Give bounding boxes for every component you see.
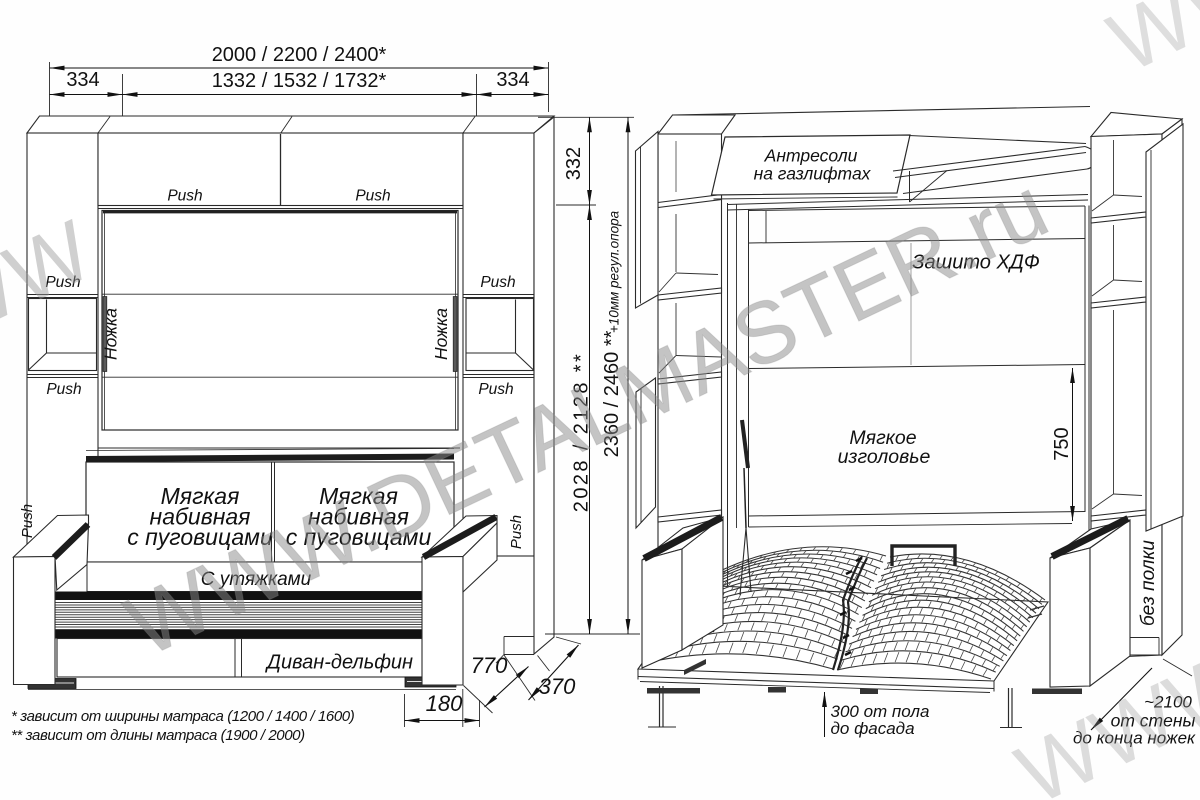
svg-text:Антресоли: Антресоли — [764, 146, 858, 166]
svg-text:Push: Push — [478, 381, 513, 398]
svg-text:334: 334 — [496, 69, 529, 91]
svg-text:Push: Push — [480, 274, 515, 291]
svg-text:1332 / 1532 / 1732*: 1332 / 1532 / 1732* — [212, 70, 387, 92]
svg-text:до фасада: до фасада — [831, 719, 915, 738]
svg-text:Ножка: Ножка — [101, 308, 121, 360]
svg-text:Push: Push — [508, 515, 525, 549]
svg-text:* зависит от ширины матраса (1: * зависит от ширины матраса (1200 / 1400… — [11, 708, 355, 725]
svg-text:изголовье: изголовье — [838, 446, 931, 468]
svg-text:370: 370 — [539, 674, 576, 699]
svg-text:2000 / 2200 / 2400*: 2000 / 2200 / 2400* — [212, 44, 387, 66]
svg-text:Push: Push — [355, 188, 390, 205]
svg-text:Ножка: Ножка — [431, 308, 451, 360]
svg-text:** зависит от длины матраса (1: ** зависит от длины матраса (1900 / 2000… — [11, 727, 305, 744]
svg-text:750: 750 — [1051, 427, 1073, 460]
svg-text:Диван-дельфин: Диван-дельфин — [265, 652, 413, 674]
svg-text:180: 180 — [426, 691, 463, 716]
svg-text:Push: Push — [46, 381, 81, 398]
svg-text:332: 332 — [563, 147, 585, 180]
svg-text:без полки: без полки — [1138, 540, 1159, 626]
svg-text:334: 334 — [66, 69, 99, 91]
svg-text:+10мм регул.опора: +10мм регул.опора — [607, 210, 622, 333]
svg-text:Push: Push — [167, 188, 202, 205]
svg-text:Push: Push — [19, 504, 36, 538]
svg-text:на газлифтах: на газлифтах — [754, 164, 872, 184]
